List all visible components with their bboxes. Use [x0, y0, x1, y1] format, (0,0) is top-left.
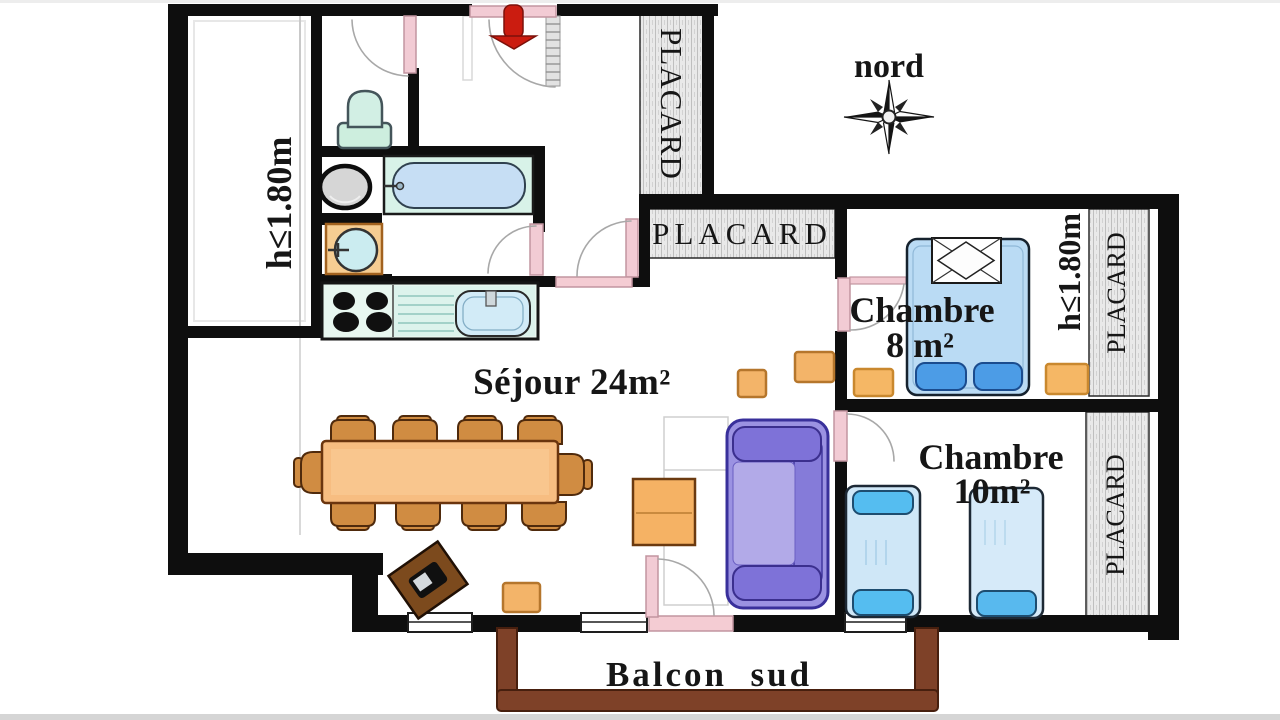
svg-text:h≤1.80m: h≤1.80m — [259, 137, 299, 270]
svg-text:PLACARD: PLACARD — [654, 28, 689, 180]
svg-text:PLACARD: PLACARD — [652, 216, 832, 251]
svg-text:Balcon sud: Balcon sud — [606, 655, 812, 694]
svg-text:h≤1.80m: h≤1.80m — [1051, 213, 1087, 331]
svg-text:nord: nord — [854, 48, 924, 85]
svg-text:PLACARD: PLACARD — [1102, 232, 1131, 353]
svg-text:Chambre: Chambre — [849, 290, 994, 330]
svg-text:8 m²: 8 m² — [886, 325, 954, 365]
svg-text:PLACARD: PLACARD — [1101, 454, 1130, 575]
svg-text:10m²: 10m² — [954, 471, 1031, 511]
svg-text:Séjour 24m²: Séjour 24m² — [473, 362, 671, 403]
